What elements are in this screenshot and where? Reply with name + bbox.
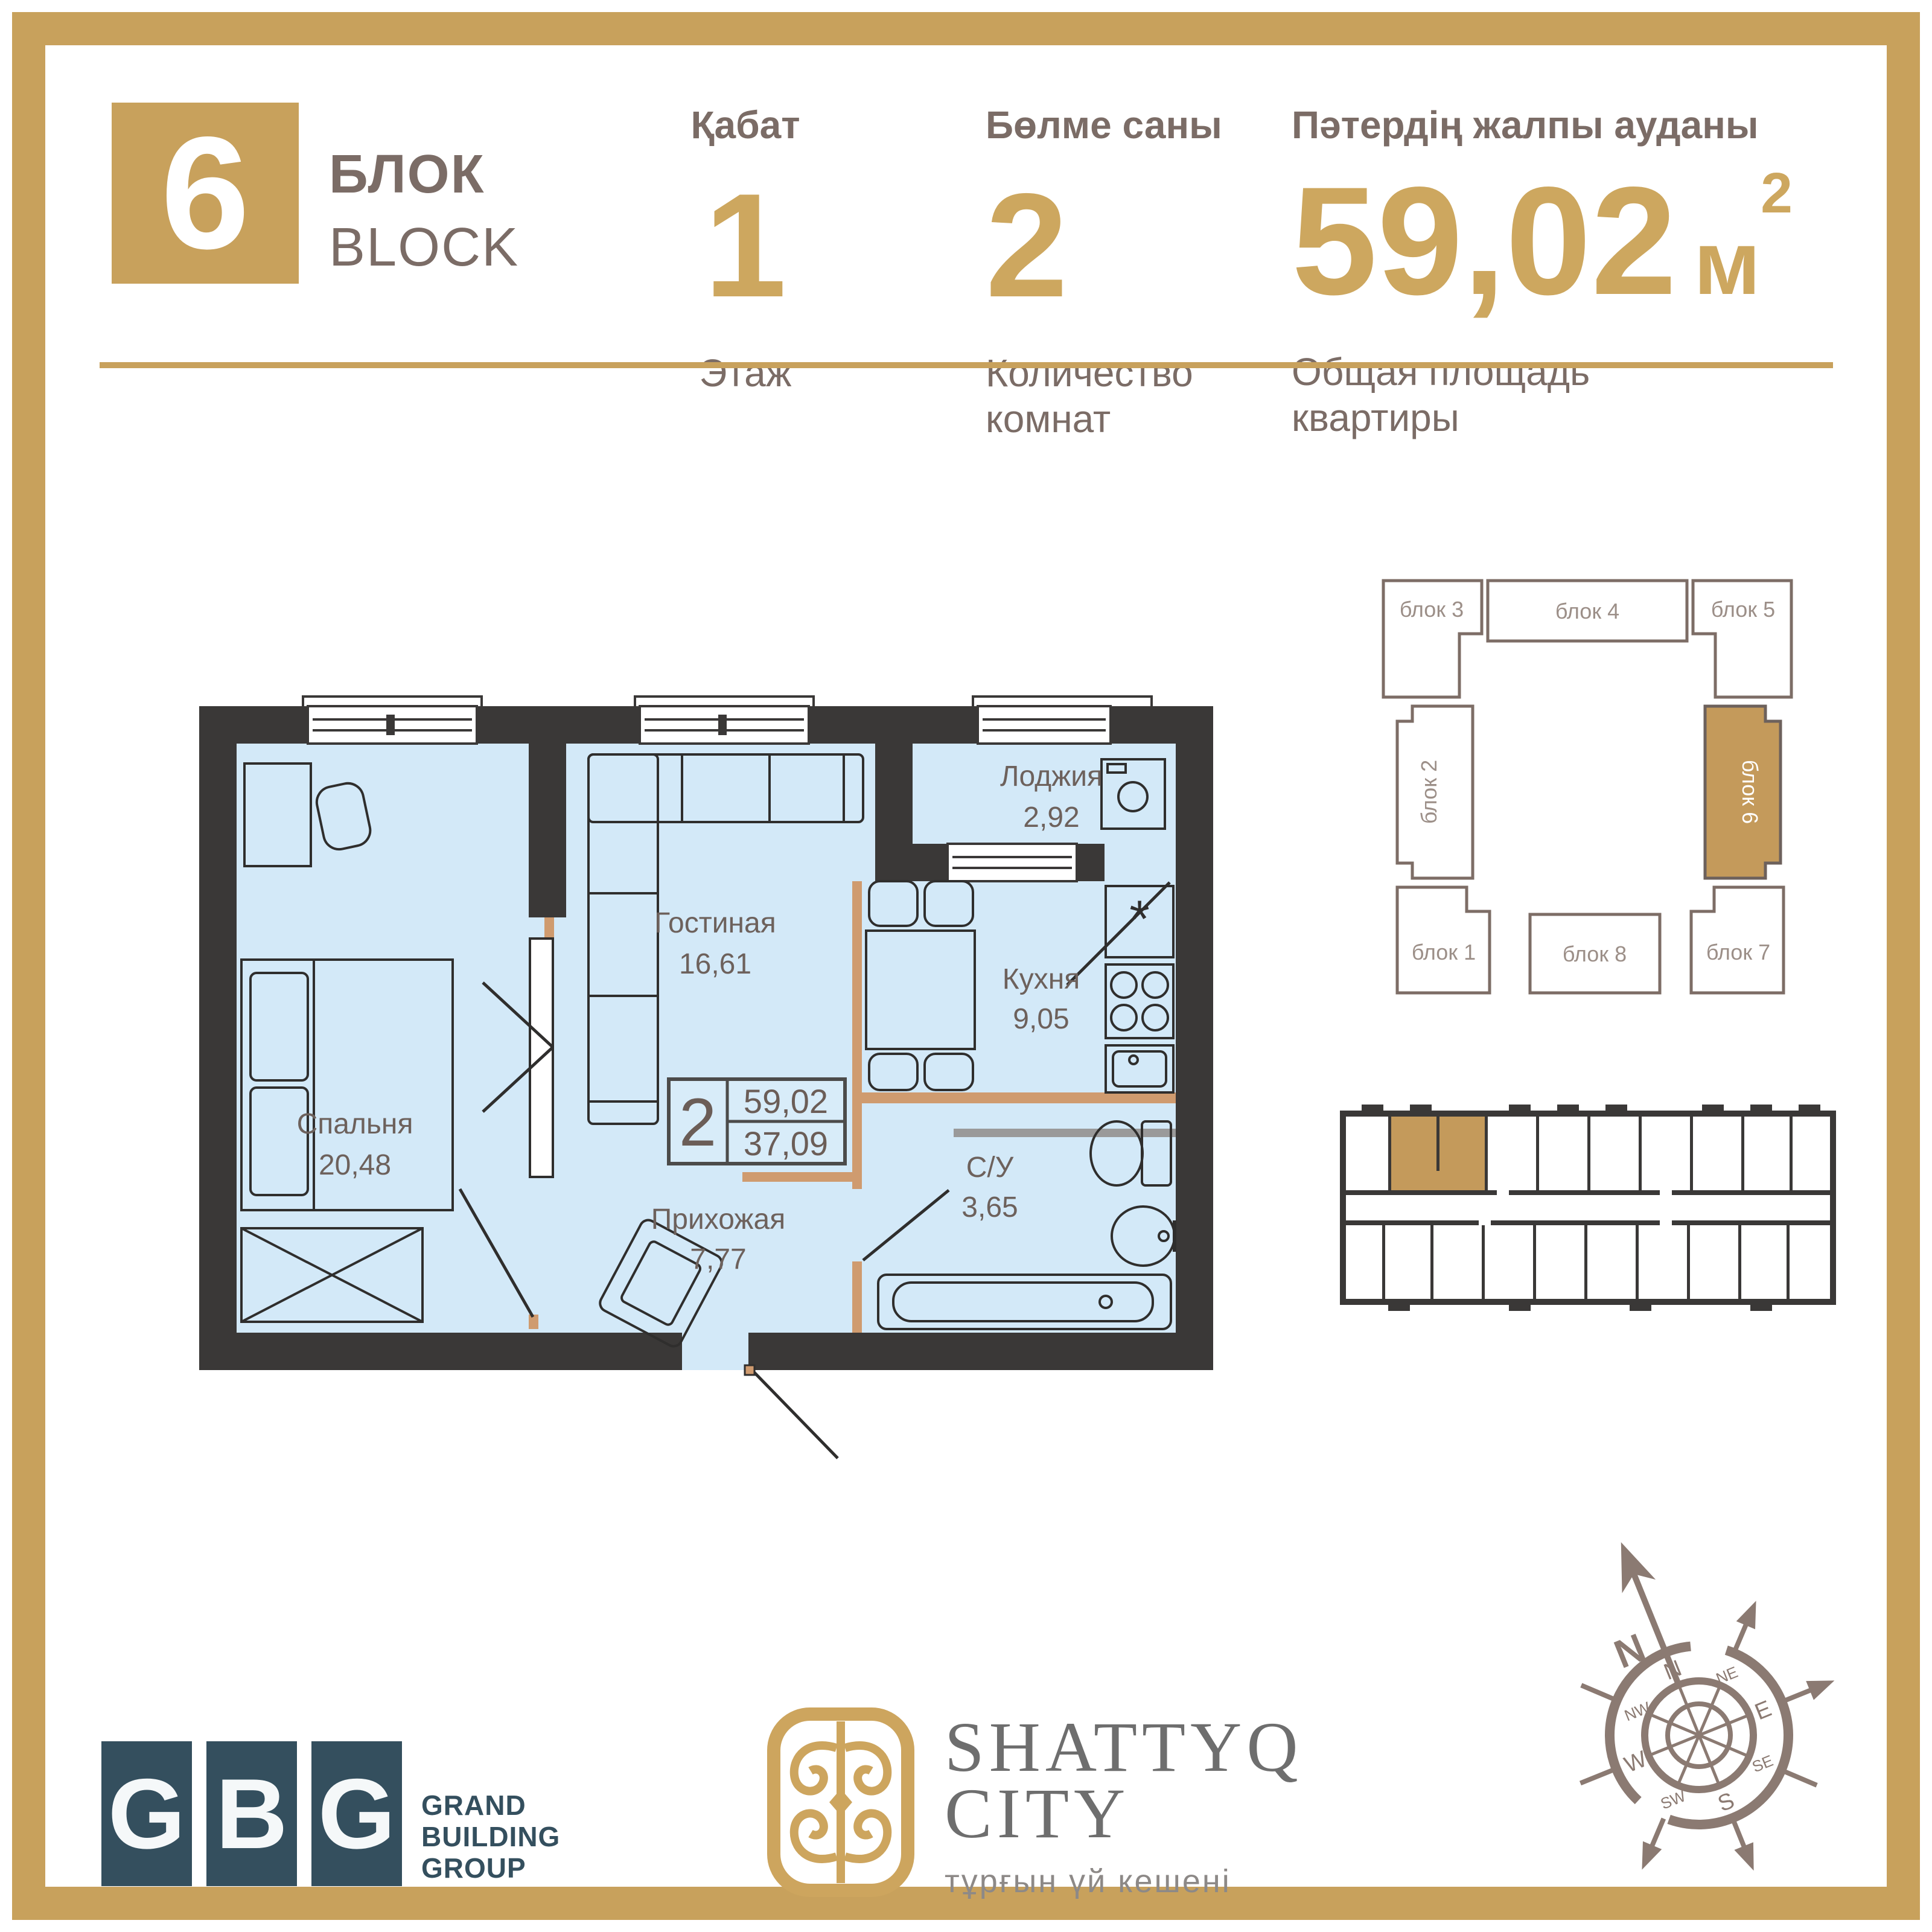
compass-group: N N E S W NE SE SW NW (1542, 1536, 1856, 1886)
compass-s: S (1714, 1788, 1738, 1817)
block-5-label: блок 5 (1711, 597, 1775, 622)
rooms-label-kk: Бөлме саны (986, 103, 1239, 147)
info-box-living-area: 37,09 (744, 1124, 828, 1162)
room-label-su: С/У (966, 1152, 1014, 1184)
ornament-diamond (829, 1789, 852, 1816)
room-area-su: 3,65 (961, 1191, 1018, 1223)
rooms-column: Бөлме саны 2 Количество комнат (986, 103, 1239, 442)
entrance-hinge (745, 1365, 754, 1375)
gbg-logo: G B G GRAND BUILDING GROUP (101, 1741, 560, 1886)
gbg-letter-2: B (215, 1757, 287, 1871)
block-label-kk: БЛОК (329, 144, 519, 206)
area-superscript: 2 (1761, 161, 1793, 225)
room-label-loggia: Лоджия (1000, 760, 1103, 792)
shattyq-title-line1: SHATTYQ (945, 1714, 1303, 1781)
room-label-bedroom: Спальня (297, 1108, 413, 1140)
apartment-floor-plan: * 2 59,02 37,09 Лод (199, 694, 1213, 1467)
shattyq-wordmark: SHATTYQ CITY тұрғын үй кешені (945, 1714, 1303, 1900)
block-number-badge: 6 (112, 103, 299, 284)
room-area-living: 16,61 (679, 948, 751, 980)
gbg-square-3: G (311, 1741, 402, 1886)
area-unit: м (1694, 212, 1761, 313)
block-8-label: блок 8 (1563, 942, 1627, 966)
gbg-name: GRAND BUILDING GROUP (421, 1790, 560, 1886)
shattyq-title-line2: CITY (945, 1781, 1303, 1847)
apartment-info-box: 2 59,02 37,09 (669, 1079, 845, 1164)
block-4-label: блок 4 (1555, 599, 1619, 623)
entrance-door-leaf (751, 1369, 838, 1458)
floor-column: Қабат 1 Этаж (667, 103, 824, 397)
block-number: 6 (161, 101, 249, 285)
window-bedroom (303, 697, 482, 744)
shattyq-ornament-icon (765, 1706, 916, 1899)
block-1-label: блок 1 (1412, 940, 1476, 964)
area-label-ru-line1: Общая площадь (1292, 349, 1865, 395)
info-box-rooms: 2 (679, 1085, 716, 1160)
block-outlines (1383, 581, 1791, 993)
floor-value: 1 (667, 171, 824, 319)
partition-hall-living (742, 1172, 852, 1182)
area-column: Пәтердің жалпы ауданы 59,02м2 Общая площ… (1292, 103, 1865, 441)
shattyq-subtitle: тұрғын үй кешені (945, 1863, 1303, 1900)
gold-divider-line (100, 362, 1833, 368)
block-scheme: блок 3 блок 4 блок 5 блок 2 блок 6 блок … (1376, 573, 1799, 1002)
hinge-bedroom-door (529, 1315, 538, 1329)
partition-hall-su (852, 1261, 862, 1333)
area-value: 59,02м2 (1292, 164, 1865, 318)
block-3-label: блок 3 (1400, 597, 1464, 622)
gbg-square-2: B (206, 1741, 297, 1886)
rooms-value: 2 (986, 171, 1239, 319)
room-area-bedroom: 20,48 (319, 1149, 391, 1181)
room-area-kitchen: 9,05 (1013, 1003, 1069, 1035)
gbg-letter-3: G (318, 1757, 395, 1871)
block-words: БЛОК BLOCK (329, 144, 519, 279)
compass-spokes (1631, 1668, 1767, 1803)
fridge-star: * (1129, 890, 1149, 948)
window-living (635, 697, 814, 744)
block-label-en: BLOCK (329, 217, 519, 279)
block-2-label: блок 2 (1417, 760, 1441, 824)
gbg-name-line1: GRAND (421, 1790, 560, 1821)
block-6-label: блок 6 (1738, 760, 1762, 824)
flyer-page: 6 БЛОК BLOCK Қабат 1 Этаж Бөлме саны 2 К… (0, 0, 1932, 1932)
room-label-living: Гостиная (654, 907, 776, 939)
gbg-square-1: G (101, 1741, 192, 1886)
info-box-total-area: 59,02 (744, 1082, 828, 1120)
gbg-name-line3: GROUP (421, 1852, 560, 1884)
gbg-letter-1: G (108, 1757, 185, 1871)
area-label-ru-line2: квартиры (1292, 395, 1865, 441)
floor-label-kk: Қабат (667, 103, 824, 147)
room-label-kitchen: Кухня (1003, 963, 1080, 995)
block-7-label: блок 7 (1706, 940, 1770, 964)
floor-label-ru: Этаж (667, 351, 824, 397)
compass-icon: N N E S W NE SE SW NW (1542, 1536, 1856, 1886)
room-area-hall: 7,77 (690, 1243, 746, 1275)
compass-north-arrowhead (1604, 1536, 1656, 1593)
area-number: 59,02 (1292, 155, 1677, 327)
room-area-loggia: 2,92 (1023, 802, 1079, 834)
room-label-hall: Прихожая (651, 1204, 785, 1235)
window-loggia-inner (948, 844, 1077, 881)
floor-overview-strip (1328, 1086, 1859, 1328)
area-label-kk: Пәтердің жалпы ауданы (1292, 103, 1865, 147)
gbg-name-line2: BUILDING (421, 1821, 560, 1852)
partition-su-top (862, 1092, 1176, 1103)
partition-hall-kitchen (852, 881, 862, 1189)
